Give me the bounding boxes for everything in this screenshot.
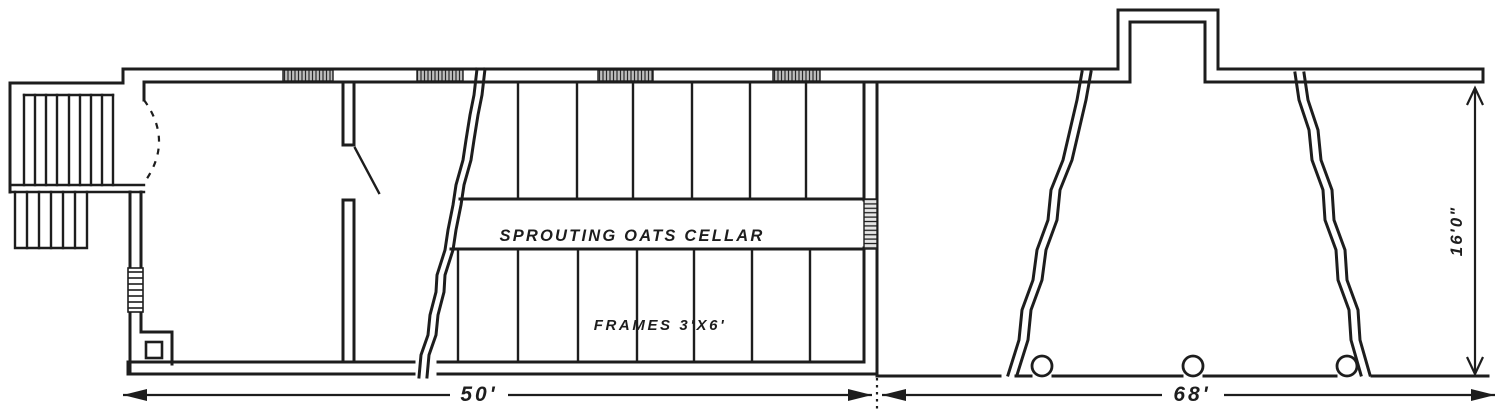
vestibule-bumpout	[1118, 10, 1218, 82]
door-leaf	[355, 148, 379, 193]
corner-post	[146, 342, 162, 358]
dimension-68ft: 68'	[882, 383, 1495, 406]
arrowhead-left-icon	[882, 389, 906, 401]
window-hatch-1	[283, 70, 333, 81]
post-circle	[1183, 356, 1203, 376]
dimension-16ft: 16'0"	[1447, 88, 1483, 374]
window-hatch-2	[417, 70, 463, 81]
arrowhead-right-icon	[848, 389, 872, 401]
arrowhead-right-icon	[1471, 389, 1495, 401]
window-hatch-4	[773, 70, 820, 81]
upper-stair-flight	[24, 95, 113, 185]
wall-window-hatches	[128, 70, 820, 312]
blueprint-sheet: SPROUTING OATS CELLAR FRAMES 3'X6' 50' 6…	[0, 0, 1500, 415]
dim-68-label: 68'	[1173, 383, 1210, 406]
side-window-hatch	[128, 268, 143, 312]
partition-vent-hatch	[864, 199, 877, 249]
dimension-50ft: 50'	[123, 383, 872, 406]
lower-stair-flight	[15, 192, 87, 248]
break-line-2	[1008, 72, 1091, 375]
break-line-3	[1295, 73, 1370, 375]
floor-plan-drawing: SPROUTING OATS CELLAR FRAMES 3'X6' 50' 6…	[0, 0, 1500, 415]
cellar-label: SPROUTING OATS CELLAR	[500, 227, 765, 245]
post-circle	[1032, 356, 1052, 376]
partition-wall-2	[864, 82, 877, 376]
post-circle	[1337, 356, 1357, 376]
dim-height-label: 16'0"	[1447, 206, 1466, 256]
break-line-1	[419, 69, 485, 377]
stairwell	[10, 83, 159, 248]
partition-wall-1	[343, 82, 379, 362]
door-swing-arc	[144, 100, 159, 180]
window-hatch-3	[598, 70, 653, 81]
floor-posts	[1032, 356, 1357, 376]
dim-50-label: 50'	[460, 383, 497, 406]
frames-label: FRAMES 3'X6'	[594, 317, 727, 334]
arrowhead-left-icon	[123, 389, 147, 401]
